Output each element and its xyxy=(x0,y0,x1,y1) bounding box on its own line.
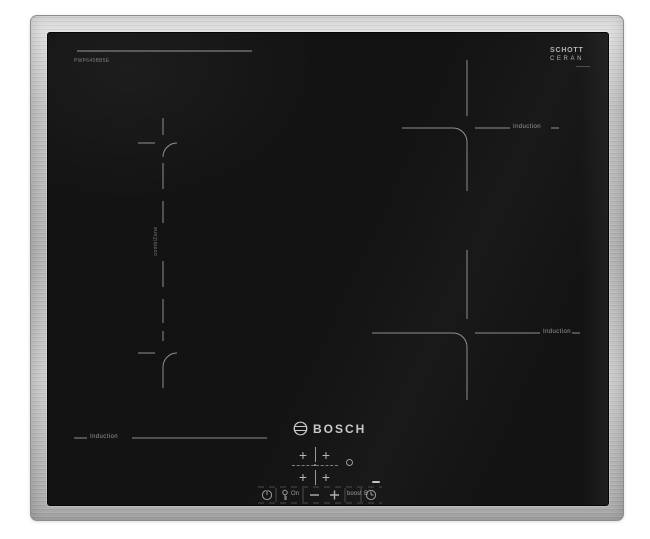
schott-ceran-logo: SCHOTT CERAN xyxy=(550,47,590,67)
key-lock-icon[interactable] xyxy=(283,490,287,500)
power-icon[interactable] xyxy=(262,490,271,500)
zone-select-front-left-button[interactable]: + xyxy=(295,448,311,464)
zone-label-top-right: Induction xyxy=(513,124,541,131)
lock-on-label: On xyxy=(291,491,299,497)
pad-divider-bottom xyxy=(315,470,316,485)
zone-marking-bottom-right xyxy=(372,250,580,400)
ceramic-glass-surface: PWP645BB5E SCHOTT CERAN Induction Induct… xyxy=(47,32,609,506)
boost-level-label: B xyxy=(364,491,368,497)
schott-line: SCHOTT xyxy=(550,47,590,55)
product-photo: PWP645BB5E SCHOTT CERAN Induction Induct… xyxy=(0,0,650,539)
residual-heat-indicator-dash xyxy=(372,481,380,483)
pad-center-dot xyxy=(314,464,316,466)
bosch-anchor-icon xyxy=(293,421,308,436)
schott-sub-mark xyxy=(576,66,590,67)
boost-label[interactable]: boost xyxy=(347,491,362,497)
flex-zone-vertical-label: combiZone xyxy=(153,221,163,261)
plus-icon[interactable] xyxy=(330,491,339,500)
bosch-logo: BOSCH xyxy=(293,421,366,436)
zone-label-bottom-right: Induction xyxy=(543,329,571,336)
zone-select-rear-left-button[interactable]: + xyxy=(295,470,311,486)
ceran-line: CERAN xyxy=(550,55,590,63)
pad-divider-top xyxy=(315,447,316,462)
model-number-text: PWP645BB5E xyxy=(74,58,110,64)
bosch-wordmark: BOSCH xyxy=(313,422,366,436)
zone-select-rear-right-button[interactable]: + xyxy=(318,470,334,486)
zone-select-front-right-button[interactable]: + xyxy=(318,448,334,464)
pad-indicator-circle xyxy=(346,459,353,466)
zone-label-bottom-left: Induction xyxy=(90,434,118,441)
stainless-frame: PWP645BB5E SCHOTT CERAN Induction Induct… xyxy=(30,15,624,521)
